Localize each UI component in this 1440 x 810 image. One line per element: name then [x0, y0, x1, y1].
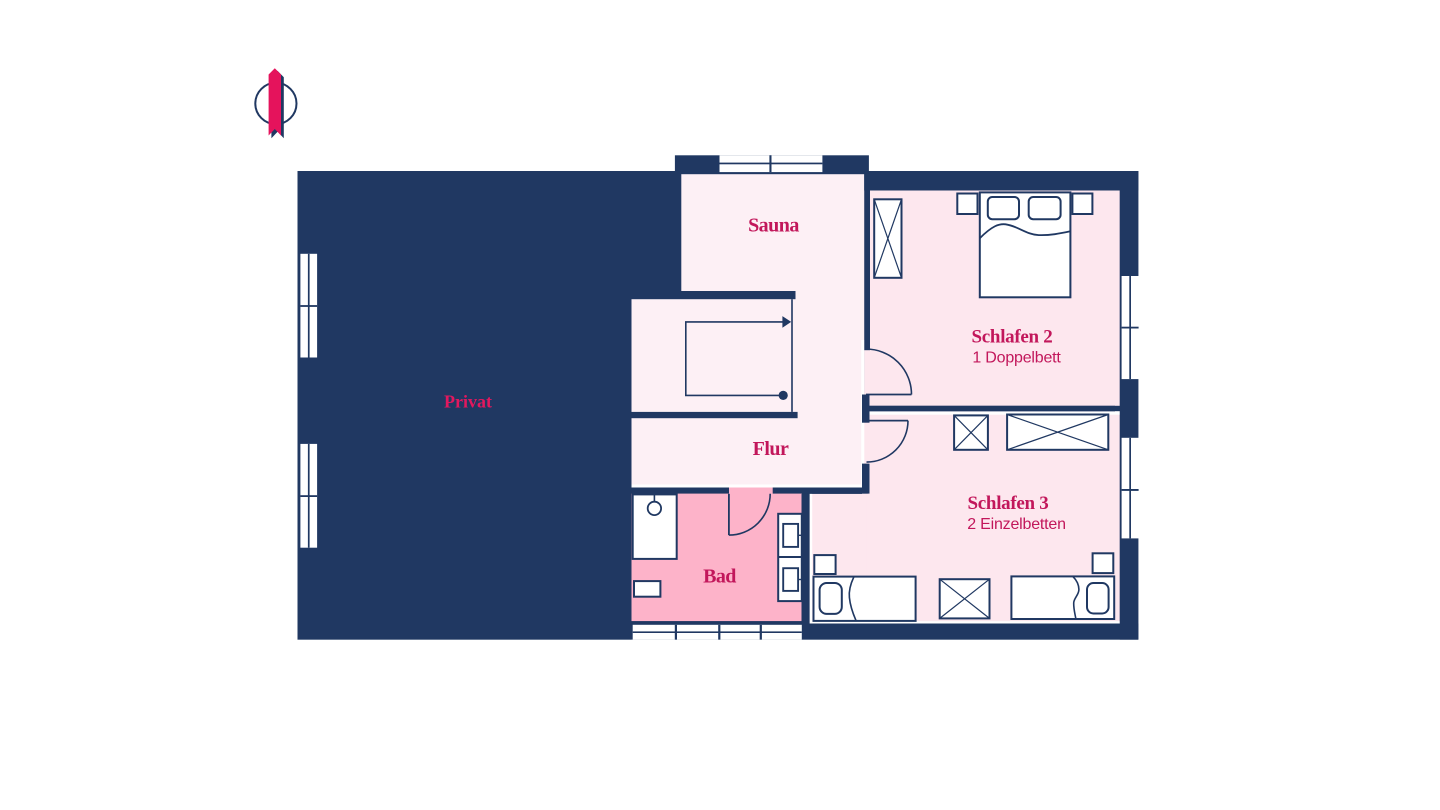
svg-text:Schlafen 3: Schlafen 3	[968, 493, 1049, 514]
svg-text:Flur: Flur	[753, 438, 789, 460]
svg-text:Privat: Privat	[444, 392, 492, 412]
svg-text:Bad: Bad	[703, 566, 736, 588]
svg-text:1 Doppelbett: 1 Doppelbett	[972, 350, 1061, 367]
svg-text:2 Einzelbetten: 2 Einzelbetten	[967, 516, 1066, 533]
svg-text:Sauna: Sauna	[748, 215, 799, 237]
svg-text:Schlafen 2: Schlafen 2	[972, 326, 1053, 347]
